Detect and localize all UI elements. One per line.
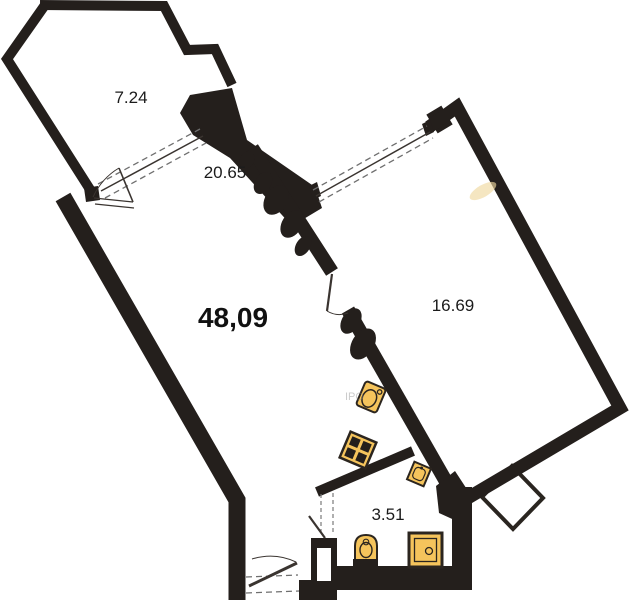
toilet-tank: [353, 559, 378, 571]
watermark-text: IPO: [345, 391, 364, 403]
bedroom-area-label: 16.69: [432, 296, 475, 315]
floor-plan: IPO 7.24 20.65 48,09 16.69 3.51: [0, 0, 642, 600]
bathroom-bottom-wall: [330, 566, 472, 590]
bathroom-area-label: 3.51: [371, 505, 404, 524]
total-area-label: 48,09: [198, 302, 268, 333]
toilet-icon: [353, 535, 378, 571]
floor-plan-page: IPO 7.24 20.65 48,09 16.69 3.51: [0, 0, 642, 600]
balcony-area-label: 7.24: [114, 88, 147, 107]
shower-tray-icon: [409, 533, 442, 567]
living-area-label: 20.65: [204, 163, 247, 182]
vent-shaft-inner: [317, 548, 331, 581]
